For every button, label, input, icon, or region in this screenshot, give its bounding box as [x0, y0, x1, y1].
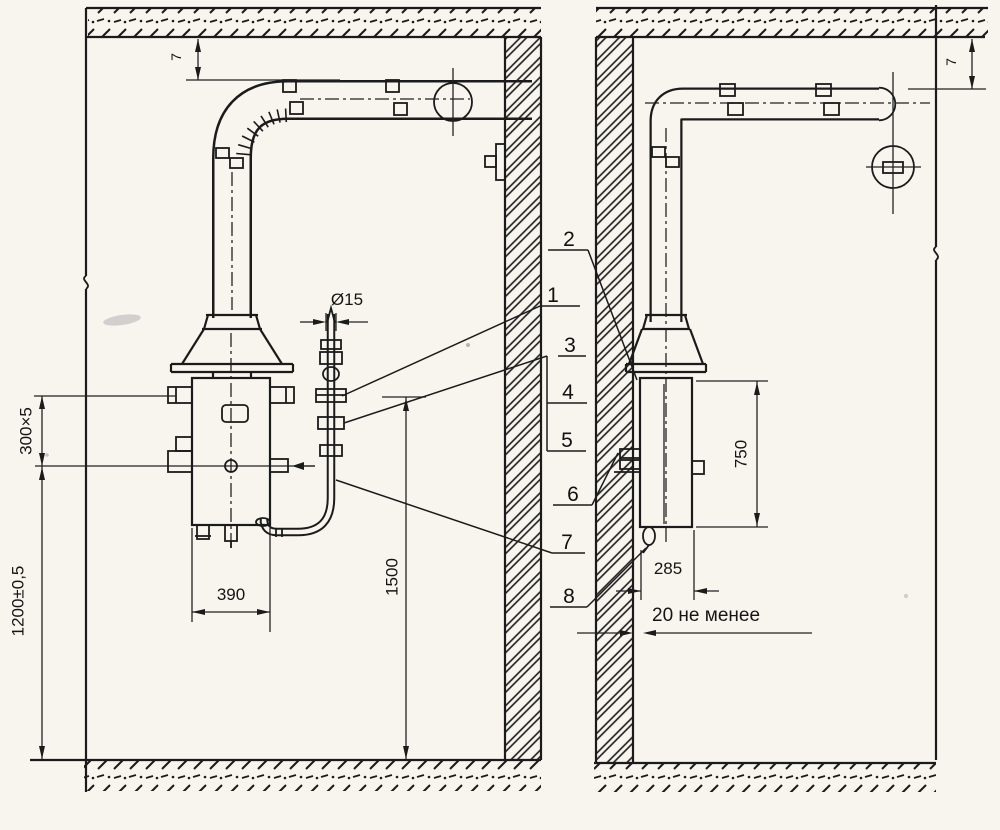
callout-3: 3: [564, 334, 576, 357]
wall-bracket: [485, 144, 505, 180]
wall-hatch-right-room: [596, 37, 633, 763]
scanned-drawing-page: 7 7 Ø15 300×5 1200±: [0, 0, 1000, 830]
ceiling-hatch-left: [88, 9, 541, 36]
dim-label-mounting-strip: 300×5: [17, 407, 36, 455]
dim-water-height: 1500: [382, 397, 426, 760]
dim-label-pipe-diameter: Ø15: [331, 290, 363, 309]
floor-hatch-left: [84, 761, 541, 791]
dim-label-heater-depth: 285: [654, 559, 682, 578]
dim-label-water-height: 1500: [383, 558, 402, 596]
dim-label-gap-front: 7: [168, 53, 184, 61]
scan-artifacts: [45, 312, 908, 598]
heater-front-view: [35, 68, 505, 548]
callout-5: 5: [561, 429, 573, 452]
installation-drawing: 7 7 Ø15 300×5 1200±: [0, 0, 1000, 830]
dim-label-gap-side: 7: [943, 58, 959, 66]
callout-7: 7: [561, 531, 573, 554]
callout-6: 6: [567, 483, 579, 506]
dim-label-wall-clearance: 20 не менее: [652, 605, 760, 626]
callout-8: 8: [563, 585, 575, 608]
dim-label-mounting-height: 1200±0,5: [9, 566, 28, 637]
wall-hatch-left-room: [505, 37, 541, 760]
dim-label-heater-height: 750: [732, 440, 751, 468]
flue-pipe-front-view: [232, 100, 532, 318]
dim-ceiling-gap-front: 7: [168, 39, 340, 80]
draft-hood: [171, 315, 293, 378]
callout-1: 1: [547, 284, 559, 307]
dim-label-heater-width: 390: [217, 585, 245, 604]
dim-ceiling-gap-side: 7: [908, 39, 986, 89]
callout-2: 2: [563, 228, 575, 251]
floor-hatch-right: [594, 764, 936, 792]
dimensions: 7 7 Ø15 300×5 1200±: [9, 39, 987, 760]
ceiling-hatch-right: [596, 9, 988, 36]
flue-pipe-side-view: [666, 88, 895, 322]
callout-4: 4: [562, 381, 574, 404]
gas-flow-arrow-icon: [292, 462, 304, 470]
dim-heater-height: 750: [696, 381, 768, 527]
dim-mounting: 300×5 1200±0,5: [9, 396, 177, 760]
